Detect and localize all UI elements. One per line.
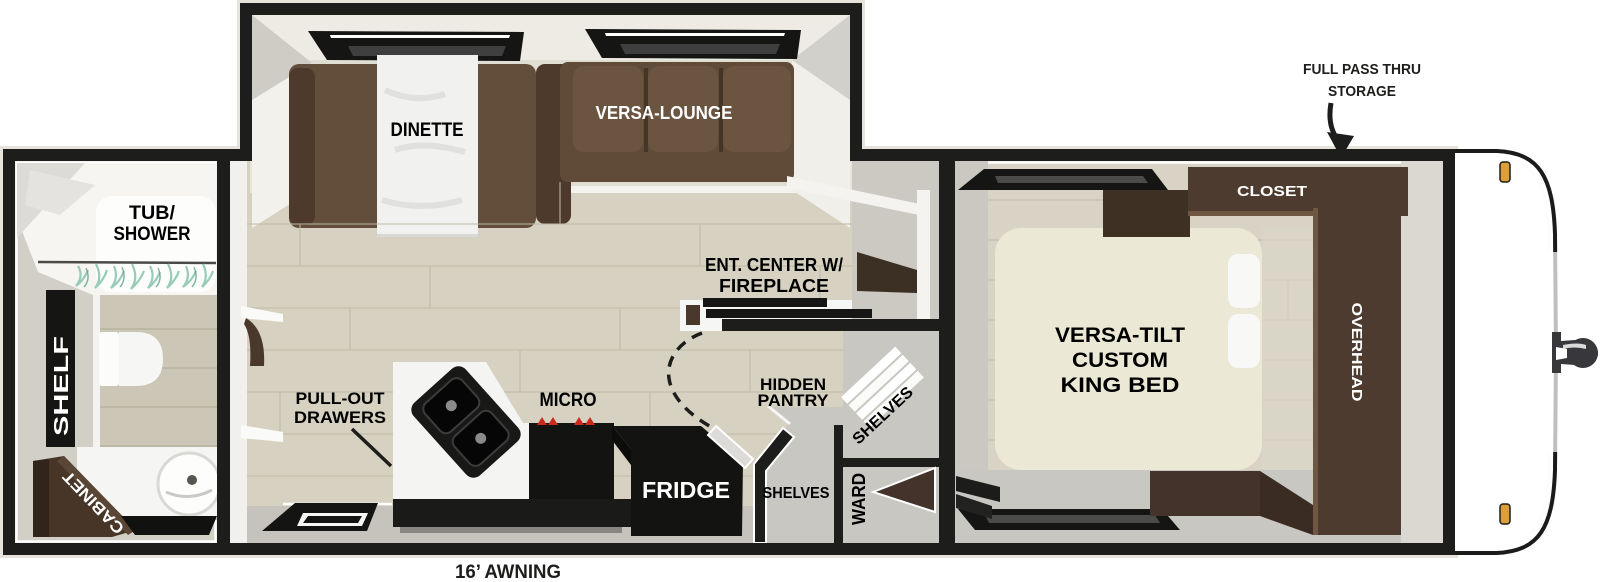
svg-text:FRIDGE: FRIDGE (642, 477, 730, 503)
svg-text:SHOWER: SHOWER (114, 224, 191, 245)
svg-text:VERSA-LOUNGE: VERSA-LOUNGE (596, 103, 733, 123)
svg-text:DRAWERS: DRAWERS (294, 408, 386, 427)
svg-text:FIREPLACE: FIREPLACE (719, 276, 829, 296)
svg-text:WARD: WARD (849, 473, 869, 525)
svg-text:FULL PASS THRU: FULL PASS THRU (1303, 61, 1421, 78)
svg-text:SHELVES: SHELVES (763, 485, 830, 502)
svg-text:PANTRY: PANTRY (758, 391, 830, 410)
svg-text:SHELF: SHELF (51, 336, 73, 436)
svg-text:TUB/: TUB/ (129, 203, 176, 224)
svg-text:16’ AWNING: 16’ AWNING (455, 562, 561, 582)
svg-text:OVERHEAD: OVERHEAD (1348, 303, 1365, 402)
svg-text:CLOSET: CLOSET (1237, 183, 1307, 200)
svg-text:MICRO: MICRO (540, 390, 597, 411)
svg-text:PULL-OUT: PULL-OUT (296, 389, 386, 408)
svg-text:VERSA-TILT: VERSA-TILT (1055, 324, 1185, 347)
svg-text:CUSTOM: CUSTOM (1072, 349, 1168, 372)
svg-text:ENT. CENTER W/: ENT. CENTER W/ (705, 255, 843, 275)
svg-text:DINETTE: DINETTE (391, 120, 464, 141)
svg-text:KING BED: KING BED (1061, 374, 1180, 397)
svg-text:STORAGE: STORAGE (1328, 83, 1396, 100)
